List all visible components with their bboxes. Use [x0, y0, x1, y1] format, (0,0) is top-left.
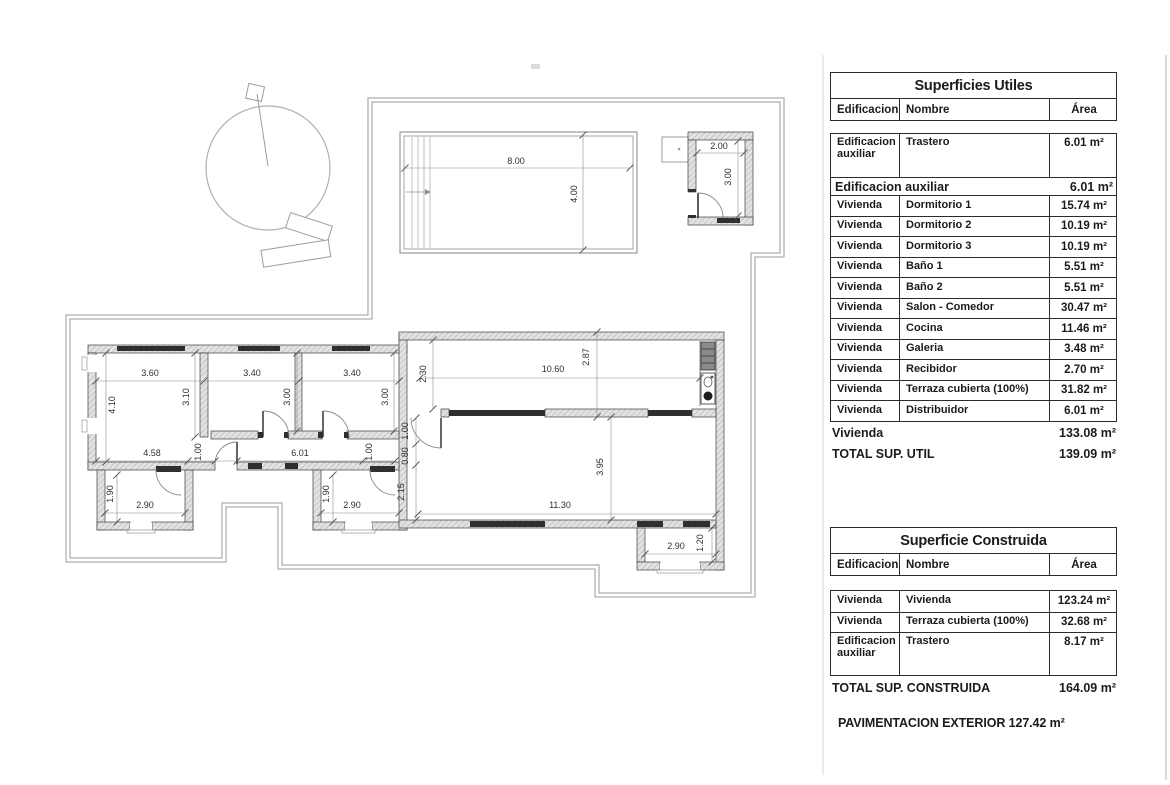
cell-nombre: Dormitorio 1 [899, 196, 1049, 216]
cell-nombre: Galeria [899, 340, 1049, 360]
cell-area: 5.51 m² [1049, 278, 1118, 298]
cell-area: 6.01 m² [1049, 134, 1118, 177]
dim-label: 2.90 [136, 500, 154, 510]
cell-nombre: Salon - Comedor [899, 299, 1049, 319]
cell-nombre: Trastero [899, 633, 1049, 675]
cell-nombre: Distribuidor [899, 401, 1049, 421]
total-row: TOTAL SUP. CONSTRUIDA164.09 m² [830, 678, 1117, 697]
dim-label: 4.10 [107, 396, 117, 414]
cell-nombre: Vivienda [899, 591, 1049, 612]
total-area: 139.09 m² [1059, 447, 1116, 461]
dim-label: 3.10 [181, 388, 191, 406]
table-row: ViviendaTerraza cubierta (100%)31.82 m² [831, 380, 1116, 401]
table-row: ViviendaGaleria3.48 m² [831, 339, 1116, 360]
trastero-annex [662, 137, 692, 162]
pool [400, 132, 637, 253]
cell-nombre: Terraza cubierta (100%) [899, 613, 1049, 633]
pavimentacion-note: PAVIMENTACION EXTERIOR 127.42 m² [838, 716, 1065, 730]
dim-label: 3.00 [723, 168, 733, 186]
total-label: TOTAL SUP. UTIL [832, 447, 935, 461]
dim-label: 2.87 [581, 348, 591, 366]
trastero [662, 132, 753, 225]
sheet-mark [531, 64, 540, 69]
table-row: ViviendaSalon - Comedor30.47 m² [831, 298, 1116, 319]
cell-nombre: Trastero [899, 134, 1049, 177]
cell-area: 10.19 m² [1049, 237, 1118, 257]
cell-ed: Edificacion auxiliar [831, 134, 899, 177]
table-row: ViviendaDormitorio 115.74 m² [831, 195, 1116, 216]
total-row: TOTAL SUP. UTIL139.09 m² [830, 445, 1117, 464]
cell-nombre: Baño 1 [899, 258, 1049, 278]
table-row: Edificacion auxiliarTrastero8.17 m² [831, 632, 1116, 675]
cell-nombre: Recibidor [899, 360, 1049, 380]
dim-label: 3.00 [380, 388, 390, 406]
cell-area: 3.48 m² [1049, 340, 1118, 360]
subtotal-label: Edificacion auxiliar [835, 180, 949, 194]
trastero-window [717, 218, 740, 223]
cell-ed: Vivienda [831, 237, 899, 257]
cell-area: 5.51 m² [1049, 258, 1118, 278]
cell-area: 6.01 m² [1049, 401, 1118, 421]
total-label: Vivienda [832, 426, 883, 440]
total-area: 164.09 m² [1059, 681, 1116, 695]
door-entry [411, 418, 441, 448]
dim-label: 3.60 [141, 368, 159, 378]
cell-ed: Vivienda [831, 196, 899, 216]
kitchen-fixtures [700, 341, 715, 406]
cell-area: 8.17 m² [1049, 633, 1118, 675]
dim-label: 2.15 [396, 483, 406, 501]
dim-label: 11.30 [549, 500, 571, 510]
dim-label: 10.60 [542, 364, 565, 374]
cell-ed: Vivienda [831, 299, 899, 319]
cell-ed: Vivienda [831, 258, 899, 278]
cell-ed: Vivienda [831, 591, 899, 612]
sunbeds [261, 213, 332, 268]
dim-label: 2.00 [710, 141, 728, 151]
table-header: Edificacion Nombre Área [830, 99, 1117, 121]
cell-nombre: Dormitorio 2 [899, 217, 1049, 237]
dim-label: 0.80 [400, 447, 410, 465]
subtotal-area: 6.01 m² [1070, 180, 1113, 194]
dim-label: 3.00 [282, 388, 292, 406]
cell-ed: Vivienda [831, 613, 899, 633]
floor-plan-sheet: { "tables": { "utiles": { "title": "Supe… [0, 0, 1170, 785]
cell-ed: Vivienda [831, 381, 899, 401]
dim-label: 2.90 [343, 500, 361, 510]
door-bath2 [370, 470, 395, 495]
cell-ed: Vivienda [831, 278, 899, 298]
dim-label: 1.20 [695, 534, 705, 552]
table-body: ViviendaVivienda123.24 m²ViviendaTerraza… [830, 590, 1117, 676]
cell-nombre: Dormitorio 3 [899, 237, 1049, 257]
total-row: Vivienda133.08 m² [830, 424, 1117, 443]
cell-area: 30.47 m² [1049, 299, 1118, 319]
dim-label: 4.00 [569, 185, 579, 203]
cell-area: 11.46 m² [1049, 319, 1118, 339]
table-row: ViviendaDormitorio 210.19 m² [831, 216, 1116, 237]
total-label: TOTAL SUP. CONSTRUIDA [832, 681, 990, 695]
table-totals: Vivienda133.08 m²TOTAL SUP. UTIL139.09 m… [830, 424, 1117, 464]
dim-label: 3.95 [595, 458, 605, 476]
cell-area: 15.74 m² [1049, 196, 1118, 216]
dim-label: 3.40 [343, 368, 361, 378]
trastero-door [698, 193, 723, 218]
cell-nombre: Baño 2 [899, 278, 1049, 298]
dim-label: 1.90 [321, 485, 331, 503]
header-area: Área [1049, 554, 1118, 575]
dim-label: 1.00 [400, 422, 410, 440]
table-row: ViviendaCocina11.46 m² [831, 318, 1116, 339]
table-row: ViviendaBaño 15.51 m² [831, 257, 1116, 278]
subtotal-row: Edificacion auxiliar6.01 m² [831, 177, 1116, 195]
table-row: ViviendaDormitorio 310.19 m² [831, 236, 1116, 257]
header-area: Área [1049, 99, 1118, 120]
table-superficies-utiles: Superficies Utiles Edificacion Nombre Ár… [830, 72, 1117, 464]
table-row: Edificacion auxiliarTrastero6.01 m² [831, 134, 1116, 177]
table-header: Edificacion Nombre Área [830, 554, 1117, 576]
table-superficie-construida: Superficie Construida Edificacion Nombre… [830, 527, 1117, 697]
tree [206, 84, 330, 230]
table-row: ViviendaVivienda123.24 m² [831, 591, 1116, 612]
cell-area: 31.82 m² [1049, 381, 1118, 401]
cell-area: 2.70 m² [1049, 360, 1118, 380]
table-totals: TOTAL SUP. CONSTRUIDA164.09 m² [830, 678, 1117, 697]
table-body: Edificacion auxiliarTrastero6.01 m²Edifi… [830, 133, 1117, 422]
header-edificacion: Edificacion [831, 99, 899, 120]
table-row: ViviendaTerraza cubierta (100%)32.68 m² [831, 612, 1116, 633]
cell-area: 32.68 m² [1049, 613, 1118, 633]
cell-ed: Edificacion auxiliar [831, 633, 899, 675]
total-area: 133.08 m² [1059, 426, 1116, 440]
cell-ed: Vivienda [831, 340, 899, 360]
cell-ed: Vivienda [831, 217, 899, 237]
cell-nombre: Terraza cubierta (100%) [899, 381, 1049, 401]
cell-nombre: Cocina [899, 319, 1049, 339]
header-nombre: Nombre [899, 554, 1049, 575]
door-bath1 [156, 470, 181, 495]
cell-ed: Vivienda [831, 319, 899, 339]
header-edificacion: Edificacion [831, 554, 899, 575]
header-nombre: Nombre [899, 99, 1049, 120]
table-title: Superficie Construida [830, 527, 1117, 554]
table-row: ViviendaRecibidor2.70 m² [831, 359, 1116, 380]
dim-label: 8.00 [507, 156, 525, 166]
dim-label: 2.90 [667, 541, 685, 551]
dim-label: 3.40 [243, 368, 261, 378]
table-row: ViviendaBaño 25.51 m² [831, 277, 1116, 298]
cell-area: 123.24 m² [1049, 591, 1118, 612]
dim-label: 4.58 [143, 448, 161, 458]
dim-label: 1.90 [105, 485, 115, 503]
table-title: Superficies Utiles [830, 72, 1117, 99]
dim-label: 1.00 [193, 443, 203, 461]
dim-label: 1.00 [364, 443, 374, 461]
dim-label: 2.30 [418, 365, 428, 383]
cell-ed: Vivienda [831, 401, 899, 421]
dim-label: 6.01 [291, 448, 309, 458]
cell-ed: Vivienda [831, 360, 899, 380]
cell-area: 10.19 m² [1049, 217, 1118, 237]
table-row: ViviendaDistribuidor6.01 m² [831, 400, 1116, 421]
